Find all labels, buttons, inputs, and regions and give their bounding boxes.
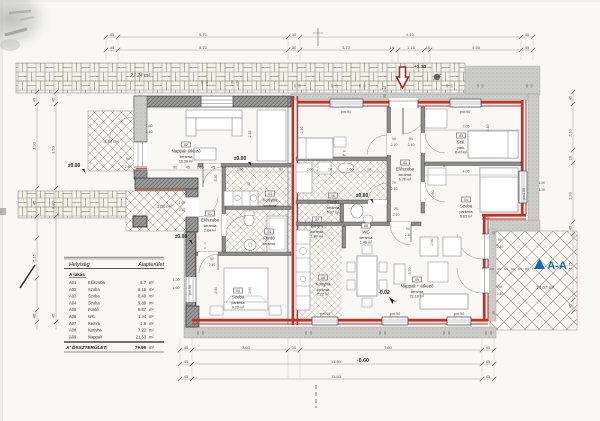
svg-text:1.50: 1.50 (539, 181, 546, 185)
svg-text:7.22: 7.22 (138, 328, 147, 333)
svg-text:75: 75 (394, 207, 398, 211)
svg-text:kerámia: kerámia (311, 230, 324, 234)
svg-text:parketta: parketta (460, 210, 473, 214)
svg-text:45: 45 (32, 313, 37, 318)
svg-text:21.53: 21.53 (136, 334, 147, 339)
svg-text:2.10: 2.10 (209, 263, 216, 267)
svg-text:A08: A08 (69, 328, 77, 333)
svg-text:50: 50 (196, 331, 200, 335)
svg-text:pm.90: pm.90 (454, 312, 465, 316)
svg-text:A' ÖSSZTERÜLET:: A' ÖSSZTERÜLET: (65, 344, 108, 350)
svg-text:kerámia: kerámia (263, 242, 276, 246)
svg-text:3.70: 3.70 (342, 45, 351, 50)
svg-text:2.20: 2.20 (568, 191, 573, 200)
svg-text:m²: m² (149, 314, 154, 319)
svg-text:4.55: 4.55 (472, 45, 481, 50)
svg-text:m²: m² (149, 287, 154, 292)
svg-text:21.10 m²: 21.10 m² (410, 295, 425, 299)
svg-text:50: 50 (335, 84, 339, 88)
svg-text:45: 45 (525, 45, 530, 50)
svg-text:3.60: 3.60 (237, 168, 244, 172)
svg-text:parketta: parketta (232, 301, 245, 305)
svg-text:2.10: 2.10 (486, 125, 490, 132)
svg-text:5.87: 5.87 (138, 307, 147, 312)
svg-text:8.80: 8.80 (51, 200, 56, 209)
svg-text:2.10: 2.10 (391, 143, 398, 147)
svg-text:1.8: 1.8 (140, 321, 146, 326)
svg-text:20: 20 (383, 331, 387, 335)
svg-text:11.50: 11.50 (331, 374, 341, 379)
svg-text:5.70: 5.70 (199, 32, 208, 37)
svg-text:1.00: 1.00 (179, 201, 186, 205)
svg-text:1.60: 1.60 (347, 168, 354, 172)
svg-text:Szoba: Szoba (88, 287, 100, 292)
svg-text:08: 08 (321, 276, 325, 280)
svg-text:A09: A09 (69, 334, 77, 339)
svg-text:04: 04 (267, 230, 271, 234)
svg-text:A03: A03 (69, 294, 77, 299)
svg-text:10: 10 (442, 164, 446, 168)
svg-text:4.05: 4.05 (463, 170, 470, 174)
svg-text:kerámia: kerámia (204, 224, 217, 228)
svg-text:27.24 m²: 27.24 m² (129, 73, 150, 79)
svg-text:5.97 m²: 5.97 m² (327, 211, 340, 215)
svg-text:45: 45 (184, 359, 189, 364)
svg-text:45: 45 (110, 32, 115, 37)
svg-text:04: 04 (236, 289, 240, 293)
svg-text:45: 45 (32, 97, 37, 102)
svg-text:2.40: 2.40 (497, 245, 504, 249)
svg-text:03: 03 (459, 134, 463, 138)
svg-text:Fürdő: Fürdő (327, 200, 339, 205)
svg-text:9.10: 9.10 (406, 32, 415, 37)
svg-text:pm.90: pm.90 (390, 312, 401, 316)
svg-text:20: 20 (447, 331, 451, 335)
svg-text:Szé.: Szé. (457, 140, 466, 145)
svg-text:10: 10 (568, 155, 573, 160)
svg-text:±0.00: ±0.00 (175, 234, 188, 240)
svg-text:45: 45 (184, 374, 189, 379)
svg-text:30: 30 (292, 32, 297, 37)
svg-text:kamra: kamra (311, 224, 324, 229)
svg-text:2.40: 2.40 (497, 292, 504, 296)
svg-text:Nappali: Nappali (88, 334, 102, 339)
svg-text:3.60: 3.60 (242, 345, 251, 350)
svg-text:2.40: 2.40 (125, 165, 132, 169)
svg-text:-0.60: -0.60 (357, 358, 369, 364)
svg-text:45: 45 (486, 359, 491, 364)
svg-text:30: 30 (247, 182, 251, 186)
svg-text:A-A: A-A (547, 260, 567, 272)
svg-text:pm.90: pm.90 (320, 312, 331, 316)
svg-text:Nappali + étkező: Nappali + étkező (401, 284, 434, 289)
svg-text:1.80: 1.80 (146, 124, 153, 128)
svg-text:06: 06 (331, 194, 335, 198)
svg-text:2.50: 2.50 (205, 80, 209, 86)
svg-text:3.05 m²: 3.05 m² (157, 204, 172, 209)
svg-text:50: 50 (481, 84, 485, 88)
svg-text:20: 20 (309, 331, 313, 335)
svg-text:90: 90 (173, 166, 177, 170)
svg-text:1.50: 1.50 (539, 188, 546, 192)
svg-text:2.50: 2.50 (235, 80, 239, 86)
svg-text:7.22 m²: 7.22 m² (317, 293, 330, 297)
svg-text:90: 90 (498, 238, 502, 242)
svg-text:±0.00: ±0.00 (68, 163, 81, 169)
svg-text:45: 45 (486, 345, 491, 350)
svg-text:Fürdő: Fürdő (263, 236, 275, 241)
svg-text:45: 45 (568, 95, 573, 100)
svg-text:20: 20 (293, 84, 297, 88)
svg-text:Szoba: Szoba (460, 204, 473, 209)
svg-text:1.15: 1.15 (407, 45, 416, 50)
svg-text:Előszoba: Előszoba (88, 280, 106, 285)
svg-text:14.07 m²: 14.07 m² (536, 285, 555, 290)
svg-text:1.65: 1.65 (197, 166, 204, 170)
svg-text:07: 07 (315, 218, 319, 222)
svg-text:park.: park. (457, 146, 465, 150)
svg-text:45: 45 (492, 311, 496, 315)
svg-text:30: 30 (292, 45, 297, 50)
svg-text:5.70: 5.70 (199, 45, 208, 50)
svg-text:50: 50 (304, 331, 308, 335)
svg-text:1.46 m²: 1.46 m² (360, 241, 373, 245)
svg-text:10: 10 (390, 45, 395, 50)
svg-text:7.60: 7.60 (384, 345, 393, 350)
svg-text:20: 20 (489, 331, 493, 335)
svg-text:9.36 m²: 9.36 m² (232, 306, 245, 310)
svg-text:10: 10 (426, 45, 431, 50)
svg-text:Nappali étkező: Nappali étkező (171, 149, 201, 154)
svg-text:pm.90: pm.90 (460, 110, 471, 114)
svg-text:45: 45 (211, 166, 215, 170)
svg-text:m²: m² (149, 334, 154, 339)
svg-text:45: 45 (486, 374, 491, 379)
svg-text:1.80 m²: 1.80 m² (311, 235, 324, 239)
svg-text:20: 20 (525, 84, 529, 88)
svg-text:Helyiség: Helyiség (69, 262, 90, 268)
svg-text:50: 50 (484, 331, 488, 335)
svg-text:45: 45 (186, 166, 190, 170)
svg-text:2.25: 2.25 (248, 131, 252, 138)
svg-text:2.10: 2.10 (393, 213, 400, 217)
svg-text:Előszoba: Előszoba (201, 218, 220, 223)
svg-text:2.05: 2.05 (463, 125, 470, 129)
svg-text:2.10: 2.10 (405, 233, 412, 237)
svg-text:A05: A05 (69, 307, 77, 312)
svg-text:20: 20 (201, 331, 205, 335)
svg-text:Szoba: Szoba (88, 300, 100, 305)
svg-text:11.50: 11.50 (331, 359, 341, 364)
svg-text:1.20: 1.20 (173, 278, 180, 282)
svg-text:-0.02: -0.02 (378, 290, 390, 296)
svg-text:WC: WC (88, 314, 95, 319)
svg-text:1.44: 1.44 (138, 314, 147, 319)
svg-text:1.60: 1.60 (173, 286, 180, 290)
svg-text:m²: m² (149, 280, 154, 285)
svg-text:90: 90 (383, 94, 387, 98)
svg-text:Konyha: Konyha (88, 328, 103, 333)
svg-text:kerámia: kerámia (264, 204, 277, 208)
svg-text:A07: A07 (69, 321, 77, 326)
svg-text:5.15: 5.15 (32, 253, 37, 262)
svg-text:04: 04 (464, 198, 468, 202)
svg-text:3.90: 3.90 (32, 141, 37, 150)
svg-text:09: 09 (415, 278, 419, 282)
svg-text:pm.90: pm.90 (188, 285, 192, 295)
svg-text:5.7: 5.7 (140, 280, 146, 285)
svg-text:±0.00: ±0.00 (234, 156, 247, 162)
svg-text:2.10: 2.10 (383, 86, 387, 92)
svg-text:20: 20 (330, 84, 334, 88)
svg-text:m²: m² (149, 307, 154, 312)
svg-text:45: 45 (32, 200, 37, 205)
svg-text:2.00: 2.00 (307, 168, 314, 172)
svg-text:5.80: 5.80 (214, 175, 218, 182)
svg-text:1.50: 1.50 (230, 80, 234, 86)
svg-text:pm1.90: pm1.90 (522, 188, 526, 200)
svg-text:10: 10 (367, 168, 371, 172)
svg-text:45: 45 (110, 45, 115, 50)
svg-text:3.75: 3.75 (568, 261, 573, 270)
svg-text:kerámia: kerámia (360, 236, 373, 240)
svg-text:02: 02 (184, 143, 188, 147)
svg-text:50: 50 (298, 84, 302, 88)
svg-text:kerámia: kerámia (180, 155, 193, 159)
svg-text:m²: m² (149, 328, 154, 333)
svg-text:Alapterület: Alapterület (137, 262, 164, 268)
svg-text:Szoba: Szoba (88, 294, 100, 299)
svg-text:2.84 m²: 2.84 m² (204, 229, 217, 233)
svg-text:kerámia: kerámia (327, 206, 340, 210)
svg-text:3.50: 3.50 (51, 145, 56, 154)
svg-text:kerámia: kerámia (317, 288, 330, 292)
svg-text:90: 90 (210, 257, 214, 261)
svg-text:50: 50 (363, 84, 367, 88)
svg-text:45: 45 (51, 313, 56, 318)
svg-text:A01: A01 (69, 280, 77, 285)
svg-text:2.10: 2.10 (568, 128, 573, 137)
svg-text:m²: m² (149, 345, 154, 350)
svg-text:03: 03 (268, 192, 272, 196)
svg-text:90: 90 (126, 157, 130, 161)
svg-text:2.60: 2.60 (214, 287, 218, 294)
svg-text:Előszoba: Előszoba (396, 167, 415, 172)
svg-text:2.10: 2.10 (391, 187, 398, 191)
svg-text:20: 20 (445, 84, 449, 88)
svg-text:90: 90 (392, 137, 396, 141)
svg-text:8a: 8a (342, 153, 346, 157)
svg-text:±0.00: ±0.00 (356, 193, 369, 199)
svg-text:9.89: 9.89 (138, 300, 147, 305)
svg-text:8.15: 8.15 (138, 287, 147, 292)
svg-text:2.60: 2.60 (248, 287, 252, 294)
svg-text:50: 50 (450, 84, 454, 88)
svg-text:A04: A04 (69, 300, 77, 305)
svg-text:2.10: 2.10 (300, 127, 304, 134)
svg-text:A lakás: A lakás (69, 272, 85, 277)
svg-text:45: 45 (184, 345, 189, 350)
svg-text:4.59 m²: 4.59 m² (104, 139, 119, 144)
svg-text:WC: WC (362, 230, 369, 235)
svg-text:20: 20 (358, 84, 362, 88)
svg-text:Fürdő: Fürdő (88, 307, 99, 312)
svg-text:Konyha: Konyha (263, 198, 278, 203)
svg-text:kerámia: kerámia (411, 290, 424, 294)
svg-text:Kamra: Kamra (88, 321, 101, 326)
svg-text:45: 45 (525, 32, 530, 37)
svg-text:90: 90 (406, 227, 410, 231)
svg-text:45: 45 (568, 303, 573, 308)
svg-text:05: 05 (364, 224, 368, 228)
svg-text:16.36 m²: 16.36 m² (179, 160, 194, 164)
svg-text:2.60: 2.60 (431, 191, 435, 198)
svg-text:Szoba: Szoba (232, 295, 245, 300)
svg-text:8.47 m²: 8.47 m² (455, 151, 468, 155)
svg-text:2.60: 2.60 (430, 239, 434, 246)
svg-text:50: 50 (530, 84, 534, 88)
svg-text:50: 50 (442, 331, 446, 335)
svg-text:9.83 m²: 9.83 m² (460, 215, 473, 219)
svg-text:3.70: 3.70 (408, 268, 412, 275)
svg-text:m²: m² (149, 294, 154, 299)
svg-text:2.10: 2.10 (179, 208, 186, 212)
svg-text:A02: A02 (69, 287, 77, 292)
svg-text:50: 50 (378, 331, 382, 335)
svg-text:Konyha: Konyha (316, 282, 331, 287)
svg-text:90: 90 (409, 137, 413, 141)
svg-text:45: 45 (51, 97, 56, 102)
svg-text:2.40: 2.40 (146, 130, 153, 134)
svg-text:30: 30 (279, 168, 283, 172)
svg-text:1.50: 1.50 (200, 80, 204, 86)
svg-text:2.10: 2.10 (408, 143, 415, 147)
svg-text:79.99: 79.99 (135, 345, 147, 350)
svg-text:45: 45 (568, 225, 573, 230)
svg-text:01: 01 (403, 161, 407, 165)
svg-text:10: 10 (328, 168, 332, 172)
svg-text:m²: m² (149, 300, 154, 305)
svg-text:6.70 m²: 6.70 m² (399, 178, 412, 182)
svg-text:30: 30 (292, 345, 297, 350)
svg-text:+1.10: +1.10 (414, 64, 426, 70)
svg-text:90: 90 (498, 285, 502, 289)
svg-text:01: 01 (208, 212, 212, 216)
svg-text:20: 20 (476, 84, 480, 88)
svg-text:pm.90: pm.90 (341, 110, 352, 114)
svg-text:m²: m² (149, 321, 154, 326)
svg-text:75: 75 (392, 181, 396, 185)
svg-text:kerámia: kerámia (399, 173, 412, 177)
svg-text:45: 45 (492, 231, 496, 235)
svg-text:A06: A06 (69, 314, 77, 319)
svg-text:8.49: 8.49 (138, 294, 147, 299)
